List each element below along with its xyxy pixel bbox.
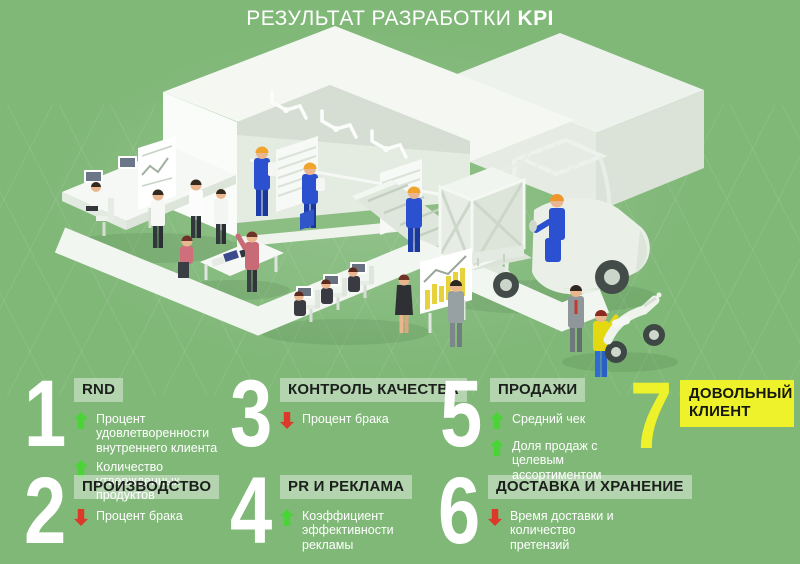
kpi-heading: ПРОДАЖИ — [490, 378, 585, 402]
arrow-down-icon — [74, 509, 88, 526]
arrow-down-icon — [488, 509, 502, 526]
isometric-scene — [0, 0, 800, 385]
kpi-bullet: Процент брака — [280, 412, 458, 429]
kpi-number: 5 — [440, 376, 480, 454]
kpi-item-production: 2 ПРОИЗВОДСТВО Процент брака — [24, 471, 242, 551]
arrow-down-icon — [280, 412, 294, 429]
kpi-heading: PR И РЕКЛАМА — [280, 475, 412, 499]
office-monitor — [118, 156, 137, 169]
kpi-bullet: Средний чек — [490, 412, 650, 429]
arrow-up-icon — [280, 509, 294, 526]
kpi-bullet: Время доставки и количество претензий — [488, 509, 638, 552]
kpi-number: 6 — [438, 473, 478, 551]
kpi-heading-highlight: ДОВОЛЬНЫЙ КЛИЕНТ — [680, 380, 794, 427]
infographic-canvas: РЕЗУЛЬТАТ РАЗРАБОТКИ KPI — [0, 0, 800, 557]
kpi-heading: RND — [74, 378, 123, 402]
kpi-number: 1 — [24, 376, 64, 454]
kpi-item-pr: 4 PR И РЕКЛАМА Коэффициент эффективности… — [230, 471, 430, 552]
kpi-item-delivery: 6 ДОСТАВКА И ХРАНЕНИЕ Время доставки и к… — [438, 471, 638, 552]
kpi-heading: ДОСТАВКА И ХРАНЕНИЕ — [488, 475, 692, 499]
arrow-up-icon — [74, 412, 88, 429]
kpi-bullet: Процент брака — [74, 509, 242, 526]
arrow-up-icon — [490, 412, 504, 429]
kpi-heading: КОНТРОЛЬ КАЧЕСТВА — [280, 378, 467, 402]
kpi-bullet: Процент удовлетворенности внутреннего кл… — [74, 412, 242, 455]
arrow-up-icon — [490, 439, 504, 456]
kpi-number: 4 — [230, 473, 270, 551]
kpi-item-quality-control: 3 КОНТРОЛЬ КАЧЕСТВА Процент брака — [230, 374, 458, 454]
kpi-number: 7 — [630, 378, 670, 456]
kpi-heading: ПРОИЗВОДСТВО — [74, 475, 219, 499]
kpi-number: 2 — [24, 473, 64, 551]
kpi-item-happy-client: 7 ДОВОЛЬНЫЙ КЛИЕНТ — [630, 376, 800, 456]
kpi-whiteboard — [420, 248, 472, 333]
kpi-number: 3 — [230, 376, 270, 454]
kpi-bullet: Коэффициент эффективности рекламы — [280, 509, 430, 552]
